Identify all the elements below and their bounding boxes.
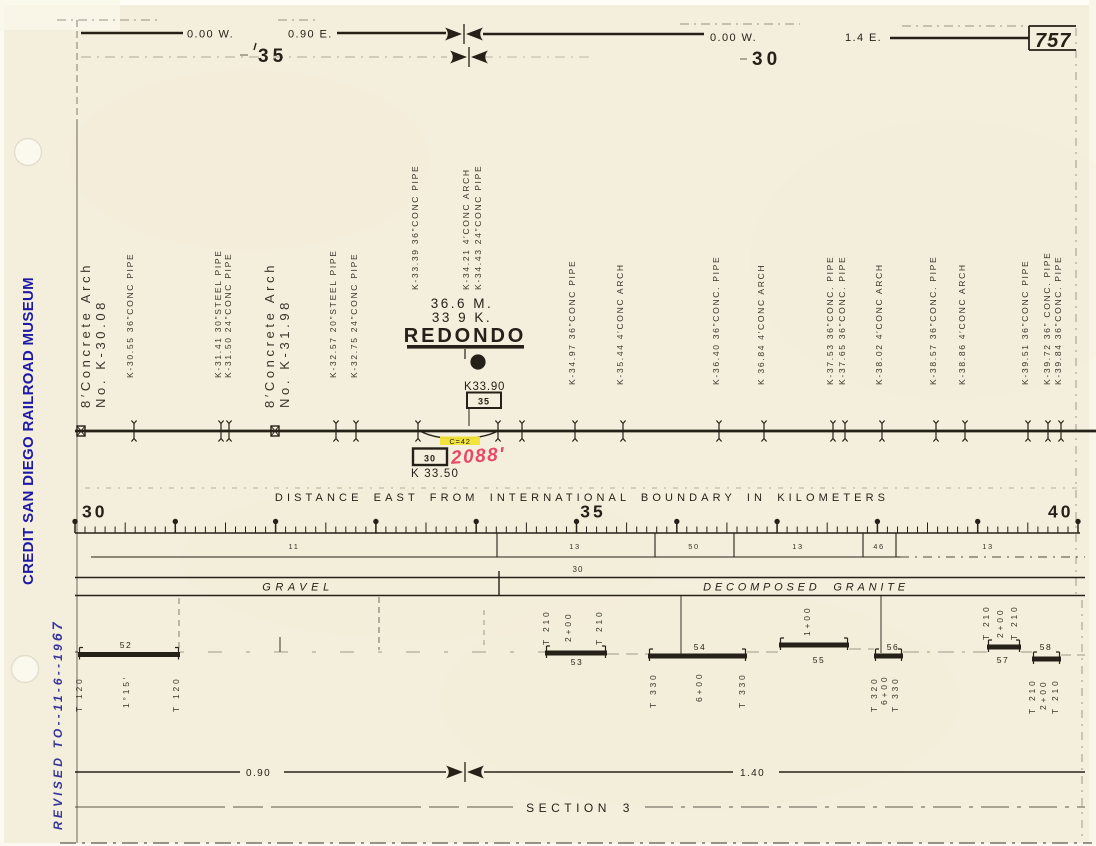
svg-text:GRAVEL: GRAVEL [262, 582, 334, 594]
svg-text:K-38.86 4′CONC ARCH: K-38.86 4′CONC ARCH [957, 263, 967, 385]
svg-text:K-39.84 36"CONC. PIPE: K-39.84 36"CONC. PIPE [1053, 256, 1063, 385]
svg-text:8′Concrete Arch: 8′Concrete Arch [262, 262, 277, 408]
svg-text:K 36.84 4′CONC ARCH: K 36.84 4′CONC ARCH [756, 264, 766, 385]
svg-text:T 210: T 210 [594, 609, 604, 645]
svg-text:No. K-31.98: No. K-31.98 [277, 299, 292, 408]
svg-text:K-34.21 4′CONC ARCH: K-34.21 4′CONC ARCH [461, 168, 471, 290]
svg-text:DECOMPOSED GRANITE: DECOMPOSED GRANITE [703, 582, 909, 594]
svg-text:58: 58 [1040, 642, 1052, 652]
svg-text:T 210: T 210 [1027, 678, 1037, 714]
svg-text:1.4 E.: 1.4 E. [845, 32, 882, 44]
svg-text:30: 30 [573, 565, 584, 574]
svg-text:K-34.97 36"CONC PIPE: K-34.97 36"CONC PIPE [567, 260, 577, 385]
svg-text:11: 11 [289, 542, 300, 551]
svg-text:53: 53 [571, 657, 583, 667]
svg-text:K 33.50: K 33.50 [411, 468, 459, 480]
svg-text:K-34.43 24"CONC PIPE: K-34.43 24"CONC PIPE [473, 165, 483, 290]
svg-text:T 320: T 320 [869, 676, 879, 712]
svg-text:6+00: 6+00 [694, 672, 704, 702]
svg-text:K-32.57 20"STEEL PIPE: K-32.57 20"STEEL PIPE [328, 249, 338, 378]
svg-text:55: 55 [813, 655, 825, 665]
svg-text:52: 52 [120, 640, 132, 650]
svg-text:T 330: T 330 [648, 672, 658, 708]
svg-text:T 120: T 120 [171, 676, 181, 712]
svg-text:K-32.75 24"CONC PIPE: K-32.75 24"CONC PIPE [349, 253, 359, 378]
svg-text:C=42: C=42 [449, 437, 470, 446]
svg-text:T 210: T 210 [1050, 678, 1060, 714]
svg-text:6+00: 6+00 [879, 675, 889, 705]
svg-text:K-38.02 4′CONC ARCH: K-38.02 4′CONC ARCH [874, 263, 884, 385]
svg-text:K-36.40 36"CONC. PIPE: K-36.40 36"CONC. PIPE [711, 256, 721, 385]
svg-text:35: 35 [478, 397, 490, 407]
svg-text:2088′: 2088′ [449, 444, 506, 469]
svg-text:30: 30 [752, 49, 781, 70]
svg-text:K-31.50 24"CONC PIPE: K-31.50 24"CONC PIPE [223, 253, 233, 378]
svg-text:1+00: 1+00 [802, 606, 812, 636]
svg-text:35: 35 [580, 502, 605, 522]
svg-text:SECTION 3: SECTION 3 [526, 801, 634, 815]
svg-text:T 210: T 210 [1009, 604, 1019, 640]
svg-text:2+00: 2+00 [995, 608, 1005, 638]
svg-text:1°15′: 1°15′ [121, 675, 131, 708]
svg-text:30: 30 [424, 454, 436, 464]
svg-text:2+00: 2+00 [563, 612, 573, 642]
svg-text:T 330: T 330 [890, 676, 900, 712]
svg-text:0.90 E.: 0.90 E. [288, 29, 333, 41]
svg-text:13: 13 [792, 542, 804, 551]
svg-text:REVISED TO--11-6--1967: REVISED TO--11-6--1967 [49, 619, 65, 830]
svg-text:57: 57 [997, 655, 1009, 665]
svg-text:K-39.51 36"CONC PIPE: K-39.51 36"CONC PIPE [1020, 260, 1030, 385]
svg-text:13: 13 [569, 542, 581, 551]
svg-text:0.00 W.: 0.00 W. [710, 32, 757, 44]
svg-text:T 330: T 330 [737, 672, 747, 708]
svg-text:50: 50 [688, 542, 700, 551]
svg-text:40: 40 [1048, 502, 1073, 522]
svg-text:0.90: 0.90 [246, 768, 271, 779]
svg-text:K-33.39 36"CONC PIPE: K-33.39 36"CONC PIPE [410, 165, 420, 290]
svg-text:REDONDO: REDONDO [404, 325, 527, 347]
svg-text:K-38.57 36"CONC. PIPE: K-38.57 36"CONC. PIPE [928, 256, 938, 385]
svg-text:13: 13 [982, 542, 994, 551]
svg-text:T 210: T 210 [981, 604, 991, 640]
svg-text:T 120: T 120 [74, 676, 84, 712]
svg-text:K-35.44 4′CONC ARCH: K-35.44 4′CONC ARCH [615, 263, 625, 385]
svg-text:2+00: 2+00 [1038, 680, 1048, 710]
svg-text:54: 54 [694, 642, 706, 652]
svg-text:K-39.72 36" CONC. PIPE: K-39.72 36" CONC. PIPE [1042, 252, 1052, 386]
svg-text:46: 46 [873, 542, 885, 551]
svg-text:T 210: T 210 [541, 609, 551, 645]
svg-text:1.40: 1.40 [740, 768, 765, 779]
svg-text:K-37.65 36"CONC. PIPE: K-37.65 36"CONC. PIPE [837, 256, 847, 385]
svg-text:8′Concrete Arch: 8′Concrete Arch [78, 262, 93, 408]
svg-text:0.00 W.: 0.00 W. [187, 29, 234, 41]
svg-text:36.6 M.: 36.6 M. [431, 296, 494, 311]
svg-text:K33.90: K33.90 [464, 381, 505, 393]
svg-text:33 9 K.: 33 9 K. [432, 310, 492, 325]
svg-text:K-37.53 36"CONC. PIPE: K-37.53 36"CONC. PIPE [825, 256, 835, 385]
svg-text:56: 56 [887, 642, 899, 652]
svg-text:No. K-30.08: No. K-30.08 [93, 299, 108, 408]
svg-text:K-31.41 30"STEEL PIPE: K-31.41 30"STEEL PIPE [213, 249, 223, 378]
svg-text:CREDIT SAN DIEGO RAILROAD MUSE: CREDIT SAN DIEGO RAILROAD MUSEUM [20, 277, 37, 585]
svg-text:757: 757 [1035, 30, 1071, 52]
svg-text:K-30.55 36"CONC PIPE: K-30.55 36"CONC PIPE [125, 253, 135, 378]
svg-text:30: 30 [82, 502, 107, 522]
